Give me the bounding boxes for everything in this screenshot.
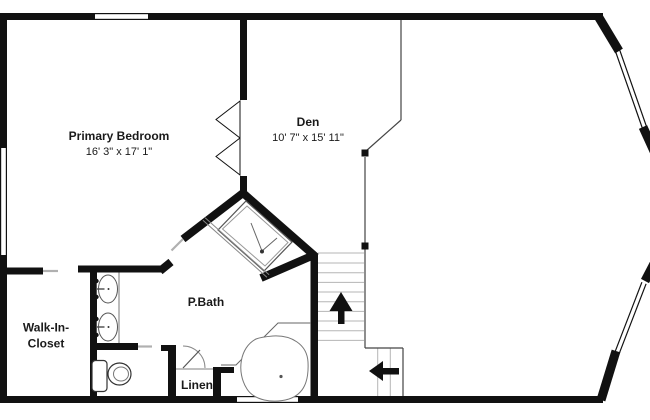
primary-bedroom-dimensions: 16' 3" x 17' 1" (69, 145, 170, 159)
window-bottom-right-icon (615, 282, 646, 354)
primary-bedroom-name: Primary Bedroom (69, 129, 170, 145)
room-label-walk-in-closet: Walk-In- Closet (23, 320, 69, 351)
stair-wall (311, 255, 319, 397)
wall-top-right-diagonal (598, 16, 650, 160)
den-dimensions: 10' 7" x 15' 11" (272, 131, 344, 145)
walk-in-closet-name-line1: Walk-In- (23, 320, 69, 336)
linen-name: Linen (181, 378, 213, 394)
left-arrow-icon (369, 361, 399, 381)
walk-in-closet-name-line2: Closet (23, 336, 69, 352)
den-opening-line (365, 20, 401, 243)
bedroom-den-wall (240, 13, 247, 197)
wall-bottom-right-diagonal (601, 256, 650, 400)
sink-icon (94, 313, 117, 341)
room-label-den: Den 10' 7" x 15' 11" (272, 115, 344, 145)
toilet-icon (92, 361, 131, 392)
room-label-linen: Linen (181, 378, 213, 394)
den-name: Den (272, 115, 344, 131)
up-arrow-icon (330, 292, 353, 324)
double-door-icon (216, 101, 240, 175)
bathtub-icon (221, 323, 311, 401)
linen-door-icon (176, 346, 213, 369)
room-label-primary-bedroom: Primary Bedroom 16' 3" x 17' 1" (69, 129, 170, 159)
room-label-pbath: P.Bath (188, 295, 224, 311)
floor-plan: Primary Bedroom 16' 3" x 17' 1" Den 10' … (0, 0, 650, 420)
window-left-icon (1, 148, 6, 255)
pbath-name: P.Bath (188, 295, 224, 311)
sink-icon (94, 275, 117, 303)
window-top-icon (95, 14, 148, 19)
floor-plan-drawing (0, 0, 650, 420)
window-top-right-icon (615, 48, 647, 129)
